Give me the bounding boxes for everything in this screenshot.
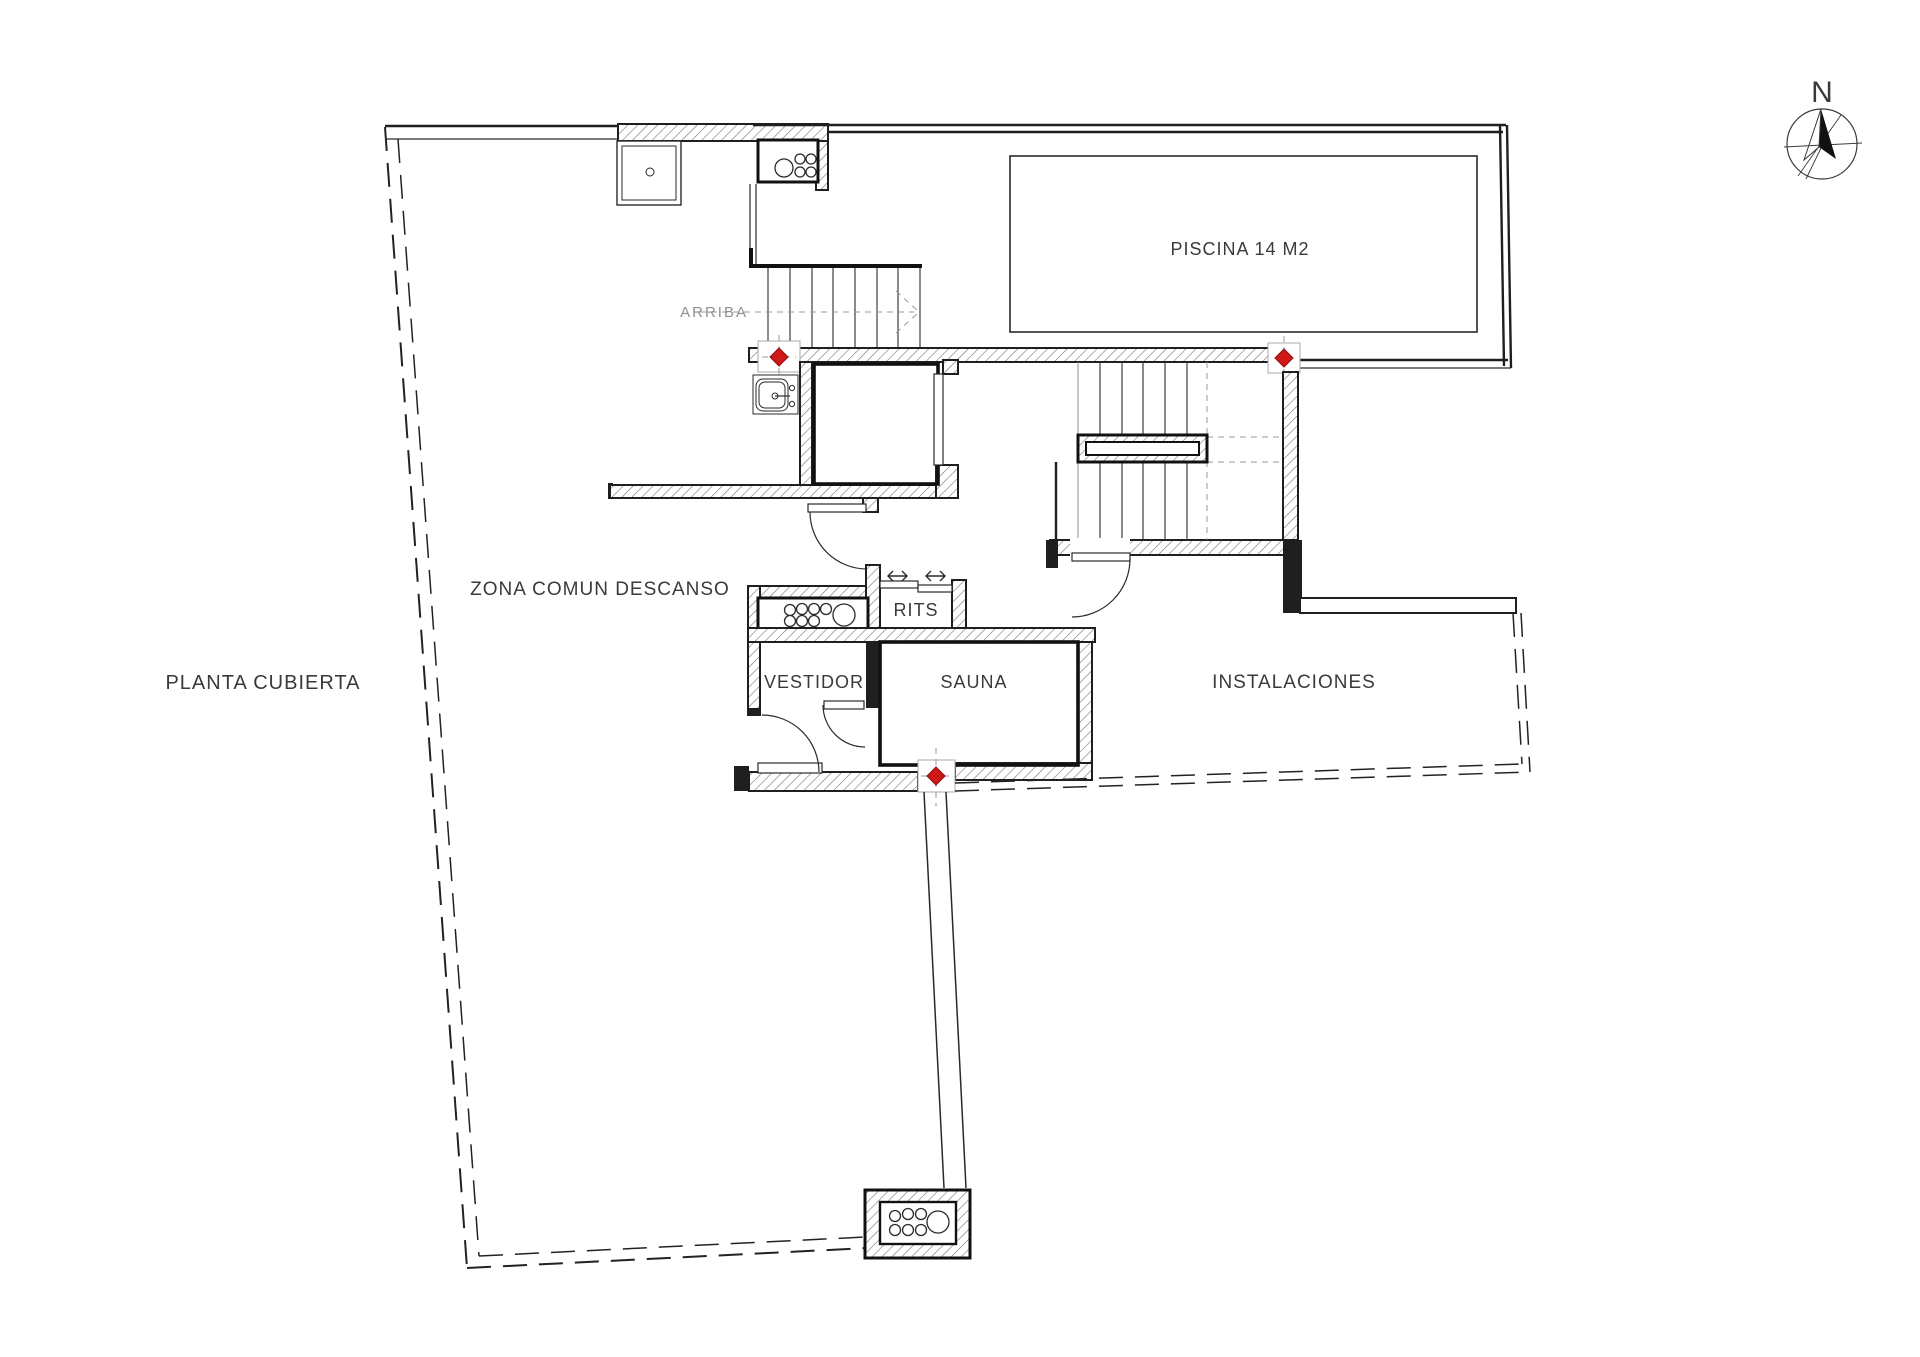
pipe-icon [797,604,808,615]
compass-needle [1819,109,1836,159]
faucet-icon [789,385,794,390]
pipe-icon [890,1211,901,1222]
door-leaf [934,374,943,465]
pipe-icon [806,154,816,164]
access-panel [918,585,952,592]
pipe-icon [821,604,832,615]
pipe-icon [809,616,820,627]
floor-plan-drawing: PISCINA 14 M2 ARRIBA [0,0,1920,1357]
pipe-icon [903,1225,914,1236]
vent-shaft-middle [758,598,868,630]
pool-label: PISCINA 14 M2 [1170,239,1309,259]
pipe-icon [797,616,808,627]
vestidor-sauna-block: VESTIDOR SAUNA [734,628,1095,791]
pipe-icon [806,167,816,177]
door-leaf [808,504,866,512]
slide-arrow-icon [888,571,907,581]
instalaciones-label: INSTALACIONES [1212,672,1376,693]
lower-corridor [865,792,970,1258]
small-room [608,362,958,569]
pipe-icon [785,616,796,627]
door-swing [810,512,867,569]
pipe-icon [833,604,855,626]
door-leaf [1072,553,1130,561]
pipe-icon [903,1209,914,1220]
pipe-icon [890,1225,901,1236]
sauna-label: SAUNA [940,672,1007,692]
floor-plan-page: PISCINA 14 M2 ARRIBA [0,0,1920,1357]
stair-upper-treads [768,268,920,348]
pipe-icon [795,154,805,164]
door-swing [1072,559,1130,617]
low-parapet [1300,598,1516,613]
pipe-icon [916,1225,927,1236]
central-wall-band [749,348,1270,374]
rits-label: RITS [893,600,938,620]
terrace-boundary [385,126,868,1268]
stair-upper: ARRIBA [680,248,922,348]
pipe-icon [795,167,805,177]
faucet-icon [789,401,794,406]
top-wall-and-shower [617,124,828,205]
section-marker [758,335,800,380]
vent-shaft-bottom [865,1190,970,1258]
zona-comun-label: ZONA COMUN DESCANSO [470,579,730,600]
pipe-icon [785,605,796,616]
north-compass-icon: N [1784,76,1862,179]
vestidor-label: VESTIDOR [764,672,864,692]
plan-title: PLANTA CUBIERTA [165,672,360,694]
stair-up-label: ARRIBA [680,304,748,321]
stair-right [1046,362,1302,617]
kitchenette [753,375,798,414]
pool-enclosure: PISCINA 14 M2 [750,125,1511,368]
pipe-icon [775,159,793,177]
shower-tray [617,141,681,205]
pipe-icon [916,1209,927,1220]
door-swing [823,705,865,747]
north-label: N [1811,76,1833,109]
door-leaf [824,701,864,709]
access-panel [880,581,918,588]
vent-shaft-top [758,140,818,182]
pipe-icon [927,1211,949,1233]
pipe-icon [809,604,820,615]
slide-arrow-icon [926,571,945,581]
